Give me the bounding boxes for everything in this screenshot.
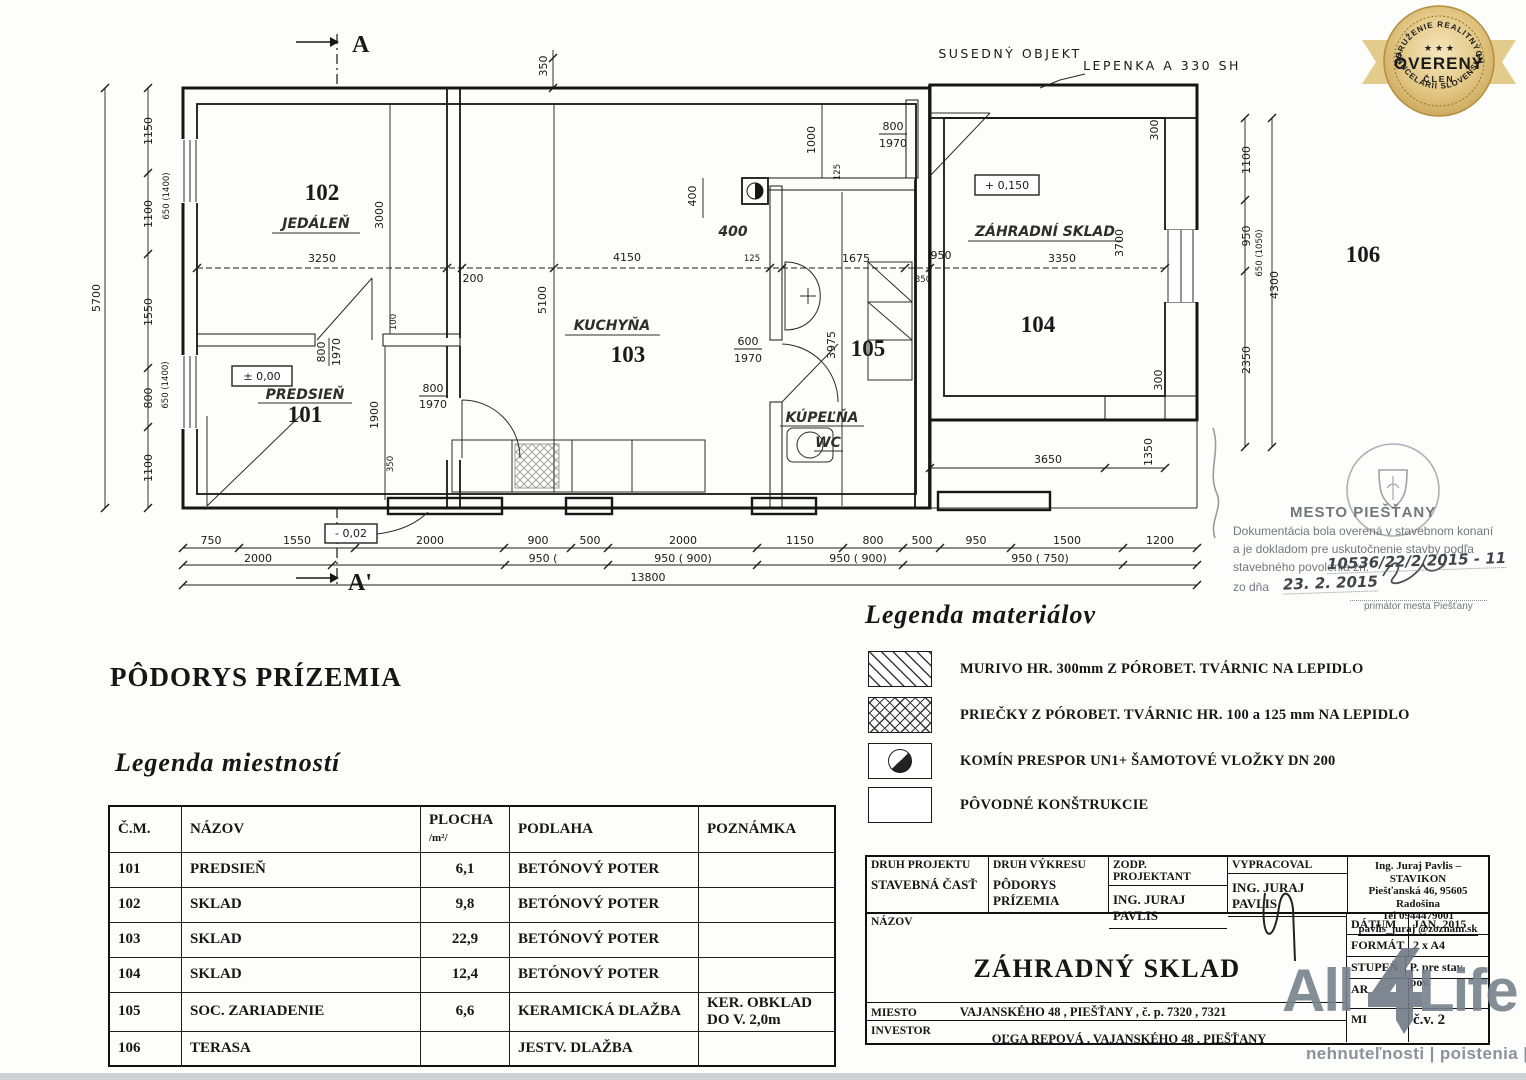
- svg-text:900: 900: [528, 534, 549, 547]
- room-103-name: KUCHYŇA: [574, 317, 650, 334]
- room-105-name: KÚPEĽŇA: [785, 408, 858, 426]
- chimney-circle-icon: [888, 749, 912, 773]
- svg-text:1350: 1350: [1142, 438, 1155, 466]
- svg-text:350: 350: [386, 456, 396, 472]
- svg-text:1970: 1970: [879, 137, 907, 150]
- window-left-1: [178, 139, 200, 203]
- room-101-name: PREDSIEŇ: [266, 386, 345, 403]
- room-105-wc: WC: [815, 435, 841, 451]
- approval-stamp: MESTO PIEŠŤANY Dokumentácia bola overená…: [1205, 418, 1526, 628]
- room-102-name: JEDÁLEŇ: [279, 215, 350, 232]
- svg-text:1100: 1100: [142, 200, 155, 228]
- overeny-badge: ZDRUŽENIE REALITNÝCH ★ ★ ★ OVERENÝ ČLEN …: [1352, 2, 1526, 120]
- exterior-walls: [178, 85, 1200, 508]
- materials-legend-title: Legenda materiálov: [865, 600, 1096, 630]
- svg-text:950: 950: [1240, 226, 1253, 247]
- datum-row: DÁTUM JAN. 2015: [1347, 912, 1488, 934]
- svg-text:3975: 3975: [825, 331, 838, 359]
- investor-row: INVESTOR OĽGA REPOVÁ , VAJANSKÉHO 48 , P…: [867, 1020, 1347, 1040]
- svg-text:950 ( 900): 950 ( 900): [654, 552, 712, 565]
- svg-text:1000: 1000: [805, 126, 818, 154]
- stamp-line4: zo dňa: [1233, 580, 1269, 594]
- svg-text:3650: 3650: [1034, 453, 1062, 466]
- terrace-dimension-labels: 1100 950 650 (1050) 4300 2350 300 3700 3…: [1113, 120, 1380, 467]
- terrace-edge: [930, 420, 1197, 508]
- table-row: 103SKLAD 22,9BETÓNOVÝ POTER: [109, 922, 835, 957]
- section-arrow-top: [330, 37, 339, 47]
- section-line: A A': [296, 32, 372, 596]
- thresholds: [388, 492, 1050, 514]
- material-item: MURIVO HR. 300mm Z PÓROBET. TVÁRNIC NA L…: [868, 651, 1364, 687]
- room-101-number: 101: [288, 402, 323, 427]
- sink: [515, 444, 559, 488]
- svg-text:400: 400: [686, 186, 699, 207]
- svg-text:1970: 1970: [330, 338, 343, 366]
- svg-text:2000: 2000: [669, 534, 697, 547]
- svg-text:650 (1400): 650 (1400): [162, 172, 172, 219]
- svg-text:350: 350: [915, 275, 931, 285]
- door-swings: [207, 113, 990, 506]
- svg-text:4150: 4150: [613, 251, 641, 264]
- table-row: 105SOC. ZARIADENIE 6,6KERAMICKÁ DLAŽBA K…: [109, 992, 835, 1031]
- left-dimension-labels: 1150 650 (1400) 1100 1550 650 (1400) 800…: [90, 117, 172, 482]
- room-102-number: 102: [305, 180, 340, 205]
- col-cm: Č.M.: [109, 806, 182, 852]
- svg-text:125: 125: [833, 164, 843, 180]
- svg-text:800: 800: [423, 382, 444, 395]
- material-label: PÔVODNÉ KONŠTRUKCIE: [960, 797, 1148, 814]
- room-labels: 102 JEDÁLEŇ 101 PREDSIEŇ 103 KUCHYŇA 105…: [258, 180, 1122, 451]
- table-row: 101PREDSIEŇ 6,1BETÓNOVÝ POTER: [109, 852, 835, 887]
- svg-text:1970: 1970: [419, 398, 447, 411]
- svg-text:1900: 1900: [368, 401, 381, 429]
- middle-dimension-labels: 3250 200 4150 125 1675 950 350 3350 3650: [308, 249, 1076, 466]
- rooms-legend-title: Legenda miestností: [115, 748, 340, 778]
- all4life-logo: All Life: [1282, 948, 1526, 1048]
- col-podlaha: PODLAHA: [510, 806, 699, 852]
- svg-text:400: 400: [717, 224, 747, 240]
- plain-swatch: [868, 787, 932, 823]
- diagonal-hatch-swatch: [868, 651, 932, 687]
- svg-text:1100: 1100: [1240, 146, 1253, 174]
- svg-text:950 ( 750): 950 ( 750): [1011, 552, 1069, 565]
- room-105-number: 105: [851, 336, 886, 361]
- svg-text:800: 800: [315, 342, 328, 363]
- section-marker-a-prime: A': [348, 570, 372, 596]
- svg-text:950 ( 900): 950 ( 900): [829, 552, 887, 565]
- plan-captions: SUSEDNÝ OBJEKT LEPENKA A 330 SH: [938, 46, 1241, 88]
- miesto-row: MIESTO VAJANSKÉHO 48 , PIEŠŤANY , č. p. …: [867, 1002, 1347, 1022]
- stamp-line1: Dokumentácia bola overená v stavebnom ko…: [1233, 524, 1493, 538]
- svg-text:1150: 1150: [142, 117, 155, 145]
- svg-text:650 (1050): 650 (1050): [1255, 229, 1265, 276]
- svg-text:800: 800: [883, 120, 904, 133]
- bottom-bar: [0, 1073, 1526, 1080]
- roof-note-label: LEPENKA A 330 SH: [1083, 58, 1241, 73]
- svg-text:300: 300: [1148, 120, 1161, 141]
- svg-text:1675: 1675: [842, 252, 870, 265]
- material-label: PRIEČKY Z PÓROBET. TVÁRNIC HR. 100 a 125…: [960, 707, 1410, 724]
- section-arrow-bottom: [330, 573, 339, 583]
- table-row: 104SKLAD 12,4BETÓNOVÝ POTER: [109, 957, 835, 992]
- rooms-legend-table: Č.M. NÁZOV PLOCHA/m²/ PODLAHA POZNÁMKA 1…: [108, 805, 836, 1067]
- chimney-symbol: [742, 178, 768, 204]
- svg-text:3350: 3350: [1048, 252, 1076, 265]
- stamp-graphics: [1205, 418, 1526, 628]
- logo-tagline: nehnuteľnosti | poistenia | úvery: [1306, 1044, 1526, 1064]
- svg-text:800: 800: [142, 388, 155, 409]
- svg-text:2350: 2350: [1240, 346, 1253, 374]
- fixtures: [452, 262, 912, 492]
- svg-text:1970: 1970: [734, 352, 762, 365]
- material-label: MURIVO HR. 300mm Z PÓROBET. TVÁRNIC NA L…: [960, 661, 1364, 678]
- col-plocha: PLOCHA/m²/: [421, 806, 510, 852]
- logo-all: All: [1282, 956, 1353, 1025]
- stamp-date-handwritten: 23. 2. 2015: [1283, 572, 1379, 594]
- svg-text:500: 500: [580, 534, 601, 547]
- col-nazov: NÁZOV: [182, 806, 421, 852]
- svg-text:2000: 2000: [416, 534, 444, 547]
- svg-text:650 (1400): 650 (1400): [161, 361, 171, 408]
- level-plus: + 0,150: [985, 179, 1029, 192]
- svg-text:300: 300: [1152, 370, 1165, 391]
- plan-title: PÔDORYS PRÍZEMIA: [110, 662, 402, 693]
- druh-projektu-cell: DRUH PROJEKTU STAVEBNÁ ČASŤ: [867, 857, 989, 912]
- svg-text:1550: 1550: [283, 534, 311, 547]
- svg-text:750: 750: [201, 534, 222, 547]
- svg-text:500: 500: [912, 534, 933, 547]
- room-103-number: 103: [611, 342, 646, 367]
- level-minus: - 0,02: [335, 527, 367, 540]
- cross-hatch-swatch: [868, 697, 932, 733]
- svg-text:1200: 1200: [1146, 534, 1174, 547]
- svg-text:13800: 13800: [631, 571, 666, 584]
- material-label: KOMÍN PRESPOR UN1+ ŠAMOTOVÉ VLOŽKY DN 20…: [960, 753, 1336, 770]
- svg-text:950: 950: [966, 534, 987, 547]
- svg-text:125: 125: [744, 254, 760, 264]
- svg-text:4300: 4300: [1268, 271, 1281, 299]
- company-info: Ing. Juraj Pavlis – STAVIKON Piešťanská …: [1347, 857, 1488, 912]
- svg-text:5700: 5700: [90, 284, 103, 312]
- door-size-labels: 800 1970 800 1970 800 1970 600 1970: [315, 120, 907, 411]
- document-page: A A' SUSEDNÝ OBJEKT LEPENKA A 330 SH: [0, 0, 1526, 1080]
- svg-text:350: 350: [537, 56, 550, 77]
- svg-text:1100: 1100: [142, 454, 155, 482]
- table-row: 106TERASA JESTV. DLAŽBA: [109, 1031, 835, 1066]
- neighbor-label: SUSEDNÝ OBJEKT: [938, 46, 1081, 61]
- druh-vykresu-cell: DRUH VÝKRESU PÔDORYS PRÍZEMIA: [989, 857, 1109, 912]
- svg-text:1500: 1500: [1053, 534, 1081, 547]
- badge-stars: ★ ★ ★: [1424, 44, 1454, 54]
- svg-text:950 (: 950 (: [529, 552, 558, 565]
- level-zero: ± 0,00: [243, 370, 280, 383]
- svg-text:2000: 2000: [244, 552, 272, 565]
- svg-text:200: 200: [463, 272, 484, 285]
- logo-4-icon: [1366, 948, 1424, 1042]
- svg-text:950: 950: [931, 249, 952, 262]
- svg-text:800: 800: [863, 534, 884, 547]
- chimney-swatch: [868, 743, 932, 779]
- svg-text:1550: 1550: [142, 298, 155, 326]
- col-poznamka: POZNÁMKA: [699, 806, 836, 852]
- svg-text:3000: 3000: [373, 201, 386, 229]
- stamp-city: MESTO PIEŠŤANY: [1290, 504, 1436, 521]
- room-106-number: 106: [1346, 242, 1381, 267]
- table-row: 102SKLAD 9,8BETÓNOVÝ POTER: [109, 887, 835, 922]
- material-item: PRIEČKY Z PÓROBET. TVÁRNIC HR. 100 a 125…: [868, 697, 1410, 733]
- handwriting-scribble: [1213, 428, 1219, 538]
- room-104-number: 104: [1021, 312, 1056, 337]
- svg-text:100: 100: [389, 314, 399, 330]
- svg-text:600: 600: [738, 335, 759, 348]
- svg-text:1150: 1150: [786, 534, 814, 547]
- svg-text:3250: 3250: [308, 252, 336, 265]
- material-item: KOMÍN PRESPOR UN1+ ŠAMOTOVÉ VLOŽKY DN 20…: [868, 743, 1336, 779]
- zodp-projektant-cell: ZODP. PROJEKTANT ING. JURAJ PAVLIS: [1109, 857, 1228, 912]
- hatched-wall-stub: [1105, 396, 1165, 420]
- logo-life: Life: [1418, 956, 1517, 1025]
- window-left-2: [178, 355, 200, 429]
- section-marker-a: A: [352, 32, 370, 58]
- stamp-caption: primátor mesta Piešťany: [1350, 600, 1487, 612]
- material-item: PÔVODNÉ KONŠTRUKCIE: [868, 787, 1148, 823]
- table-header-row: Č.M. NÁZOV PLOCHA/m²/ PODLAHA POZNÁMKA: [109, 806, 835, 852]
- room-104-name: ZÁHRADNÍ SKLAD: [974, 223, 1115, 240]
- svg-text:5100: 5100: [536, 286, 549, 314]
